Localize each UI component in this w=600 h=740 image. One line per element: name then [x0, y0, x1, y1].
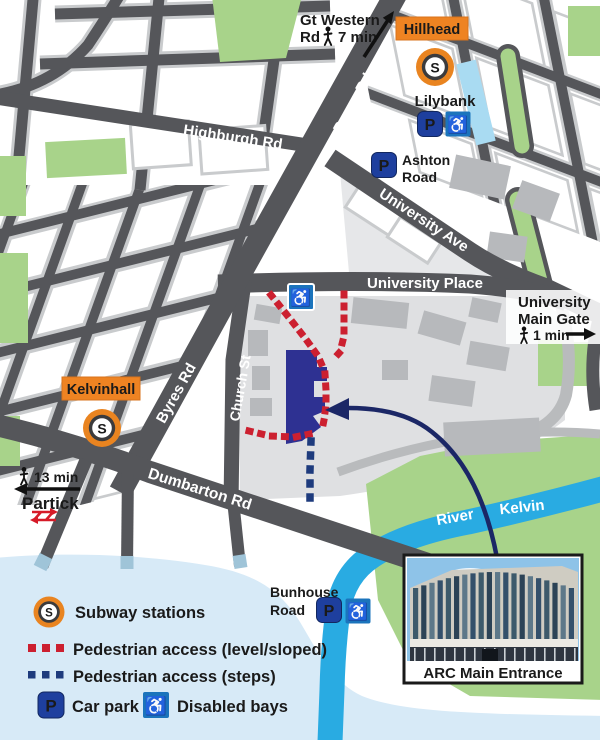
walker-icon	[325, 27, 332, 46]
disabled-icon-lilybank: ♿	[446, 112, 471, 137]
legend-disabled-icon: ♿	[143, 692, 169, 718]
svg-text:Bunhouse: Bunhouse	[270, 584, 339, 600]
inset-caption: ARC Main Entrance	[423, 665, 562, 682]
svg-text:Rd: Rd	[300, 29, 320, 46]
station-badge-kelvinhall: Kelvinhall	[62, 377, 140, 400]
svg-text:♿: ♿	[347, 602, 368, 622]
label-lilybank: Lilybank	[415, 93, 477, 110]
disabled-icon-bunhouse: ♿	[346, 599, 371, 624]
svg-text:P: P	[324, 603, 335, 620]
legend-disabled-label: Disabled bays	[177, 698, 288, 716]
svg-text:Road: Road	[402, 169, 437, 185]
annotation-partick: 13 min Partick	[14, 467, 80, 524]
svg-text:♿: ♿	[447, 115, 468, 135]
svg-text:P: P	[425, 117, 436, 134]
legend-ped-steps-label: Pedestrian access (steps)	[73, 668, 276, 686]
svg-text:Hillhead: Hillhead	[404, 22, 460, 38]
svg-text:S: S	[97, 421, 106, 437]
legend-ped-steps-swatch	[28, 671, 64, 679]
svg-text:University: University	[518, 294, 591, 311]
annotation-main-gate: University Main Gate 1 min	[506, 290, 600, 344]
svg-text:S: S	[45, 608, 53, 620]
svg-text:Main Gate: Main Gate	[518, 311, 590, 328]
svg-text:P: P	[45, 697, 56, 716]
legend-ped-level-label: Pedestrian access (level/sloped)	[73, 641, 327, 659]
legend-subway-label: Subway stations	[75, 604, 205, 622]
legend-subway-icon: S	[34, 597, 65, 628]
station-badge-hillhead: Hillhead	[396, 17, 468, 40]
svg-text:S: S	[430, 60, 439, 76]
svg-text:13 min: 13 min	[34, 469, 78, 485]
parking-icon-bunhouse: P	[317, 598, 342, 623]
parking-icon-lilybank: P	[418, 112, 443, 137]
map-canvas: Byres Rd Byres Rd Highburgh Rd Universit…	[0, 0, 600, 740]
parking-icon-ashton: P	[372, 153, 397, 178]
svg-text:1 min: 1 min	[533, 327, 570, 343]
photo-inset-arc: ARC Main Entrance	[404, 555, 582, 683]
svg-text:♿: ♿	[290, 288, 311, 308]
svg-text:Kelvinhall: Kelvinhall	[67, 382, 136, 398]
legend-ped-level-swatch	[28, 644, 64, 652]
label-university-place: University Place	[367, 275, 483, 292]
svg-text:Gt Western: Gt Western	[300, 12, 380, 29]
disabled-icon-university-place: ♿	[288, 284, 314, 310]
subway-station-hillhead-icon: S	[416, 48, 454, 86]
legend-parking-label: Car park	[72, 698, 140, 716]
subway-station-kelvinhall-icon: S	[83, 409, 121, 447]
svg-text:♿: ♿	[145, 695, 167, 716]
legend-parking-icon: P	[38, 692, 64, 718]
svg-text:Road: Road	[270, 602, 305, 618]
svg-text:P: P	[379, 158, 390, 175]
svg-text:Ashton: Ashton	[402, 152, 450, 168]
